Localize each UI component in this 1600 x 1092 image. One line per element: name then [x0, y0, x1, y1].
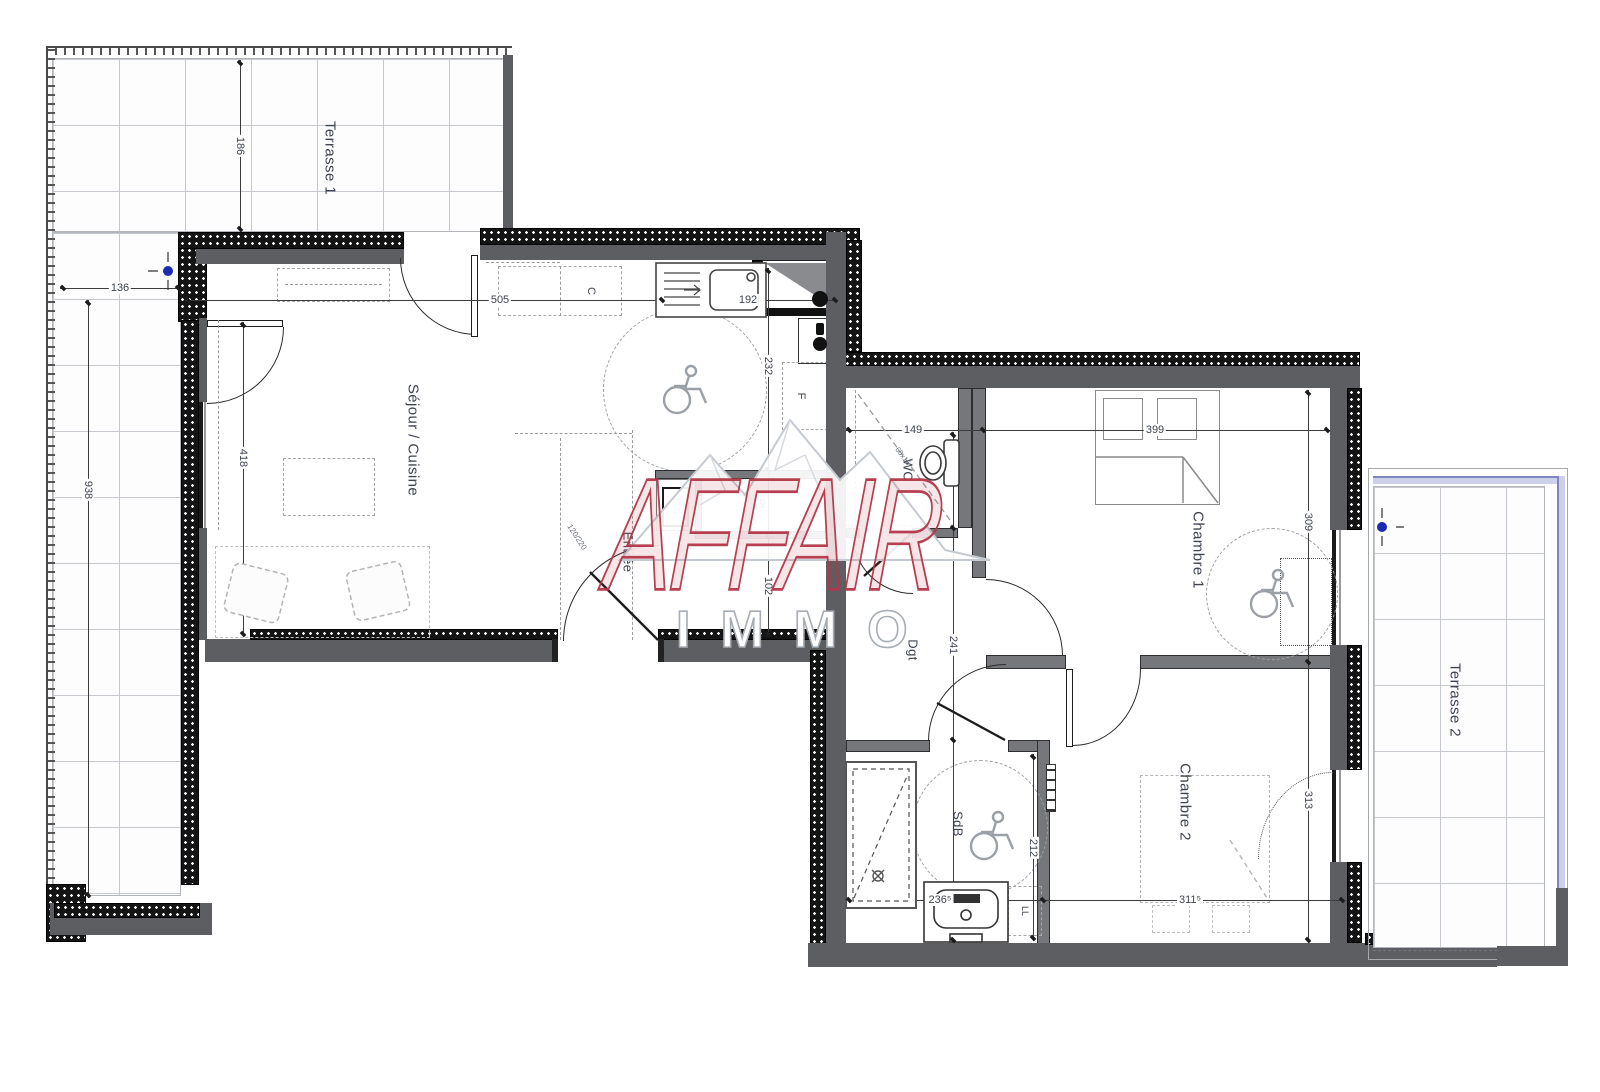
kitchen-counter-divider — [560, 266, 561, 316]
window-glazing — [1339, 530, 1341, 645]
wall-segment — [480, 245, 846, 260]
dim-sejour-height: 418 — [237, 447, 249, 469]
insulation-hatch — [1347, 862, 1362, 943]
dim-terrace1-top: 186 — [234, 135, 246, 157]
duct-edge — [762, 308, 836, 316]
window-projection-dash — [218, 320, 219, 530]
room-label-chambre1: Chambre 1 — [1190, 511, 1207, 589]
sideboard-outline — [277, 268, 390, 302]
wall-segment — [836, 366, 1360, 388]
wall-segment — [1330, 645, 1347, 770]
dim-sdb-width: 236⁵ — [927, 894, 954, 906]
room-label-sejour: Séjour / Cuisine — [405, 384, 422, 496]
accessibility-circle — [912, 760, 1048, 896]
room-label-sdb: SdB — [951, 811, 966, 837]
dim-chambre1-width: 399 — [1144, 424, 1166, 436]
door-leaf — [1066, 669, 1073, 747]
window-glazing — [1339, 770, 1341, 862]
furniture-outline — [1152, 905, 1190, 933]
wall-segment — [196, 249, 404, 264]
room-label-chambre2: Chambre 2 — [1177, 763, 1194, 841]
wall-segment — [1497, 946, 1568, 966]
dim-sejour-width: 505 — [489, 294, 511, 306]
door-frame — [658, 639, 664, 662]
dimension-line — [846, 900, 1345, 901]
entry-door-size-label: 120/220 — [565, 522, 588, 551]
door-frame — [552, 639, 558, 662]
wall-segment — [205, 639, 558, 662]
door-swing-arc — [400, 258, 477, 335]
wall-segment — [1556, 888, 1568, 950]
ceiling-dash — [486, 262, 560, 263]
accessibility-circle — [1206, 528, 1338, 660]
insulation-hatch — [836, 352, 1360, 366]
insulation-hatch — [178, 232, 404, 249]
bed-outline-dashed — [1140, 775, 1270, 903]
wall-segment — [1330, 862, 1347, 943]
wall-segment — [199, 528, 207, 640]
dim-chambre2-width: 311⁵ — [1177, 894, 1203, 906]
terrace1-railing-left — [46, 46, 55, 942]
dim-dgt-height: 241 — [947, 634, 959, 656]
door-swing-arc — [1073, 669, 1141, 746]
insulation-hatch — [810, 650, 826, 945]
fridge-label: F — [795, 393, 807, 400]
dim-sdb-height: 212 — [1027, 837, 1039, 859]
insulation-hatch — [181, 320, 199, 885]
dim-kitchen-depth: 232 — [762, 355, 774, 377]
insulation-hatch — [54, 903, 200, 918]
window-glazing — [199, 402, 203, 528]
survey-point — [1377, 522, 1387, 532]
window-glazing — [204, 402, 206, 528]
room-label-terrasse1: Terrasse 1 — [322, 121, 339, 195]
pillow-outline — [1103, 398, 1143, 440]
door-swing-arc — [986, 579, 1063, 656]
dim-chambre1-height: 309 — [1302, 511, 1314, 533]
wall-segment — [503, 55, 513, 228]
partition-wall — [1140, 655, 1345, 669]
dim-chambre2-height: 313 — [1302, 789, 1314, 811]
dim-terrace1-offset: 136 — [109, 282, 131, 294]
terrace2-edge-dash — [1373, 950, 1497, 951]
insulation-hatch — [1347, 388, 1362, 530]
insulation-hatch — [480, 228, 860, 245]
dimension-line — [88, 300, 89, 898]
laundry-label: LL — [1020, 906, 1030, 916]
dimension-line — [243, 322, 244, 637]
insulation-hatch — [1347, 645, 1362, 770]
insulation-hatch — [752, 260, 762, 316]
sofa-outline — [215, 546, 430, 638]
towel-radiator — [1046, 764, 1056, 812]
kitchen-unit-label: C — [585, 287, 597, 295]
table-outline — [283, 458, 375, 516]
watermark-brand: AFFAIR — [601, 455, 945, 615]
terrace2-railing-top — [1373, 476, 1565, 484]
survey-point — [163, 266, 173, 276]
door-swing-arc — [928, 664, 1006, 741]
terrace1-tiles-left — [52, 232, 181, 896]
terrace2-railing-right — [1557, 476, 1565, 890]
sideboard-inner — [285, 284, 382, 285]
room-label-terrasse2: Terrasse 2 — [1447, 663, 1464, 737]
terrace1-tiles-top — [52, 58, 504, 232]
wall-segment — [1330, 388, 1347, 530]
insulation-hatch — [846, 240, 862, 352]
dim-terrace1-height: 938 — [82, 479, 94, 501]
ceiling-dash — [560, 438, 561, 640]
furniture-outline — [1212, 905, 1250, 933]
door-leaf — [471, 255, 478, 337]
dimension-line — [1308, 390, 1309, 943]
dim-kitchen-sink: 192 — [737, 294, 759, 306]
shower-icon — [846, 762, 916, 908]
wall-segment — [199, 318, 207, 402]
partition-wall — [846, 740, 930, 752]
floor-plan: Terrasse 1 C F ETEL PL 120/220 Entr — [0, 0, 1600, 1092]
terrace1-railing-top — [46, 46, 512, 55]
